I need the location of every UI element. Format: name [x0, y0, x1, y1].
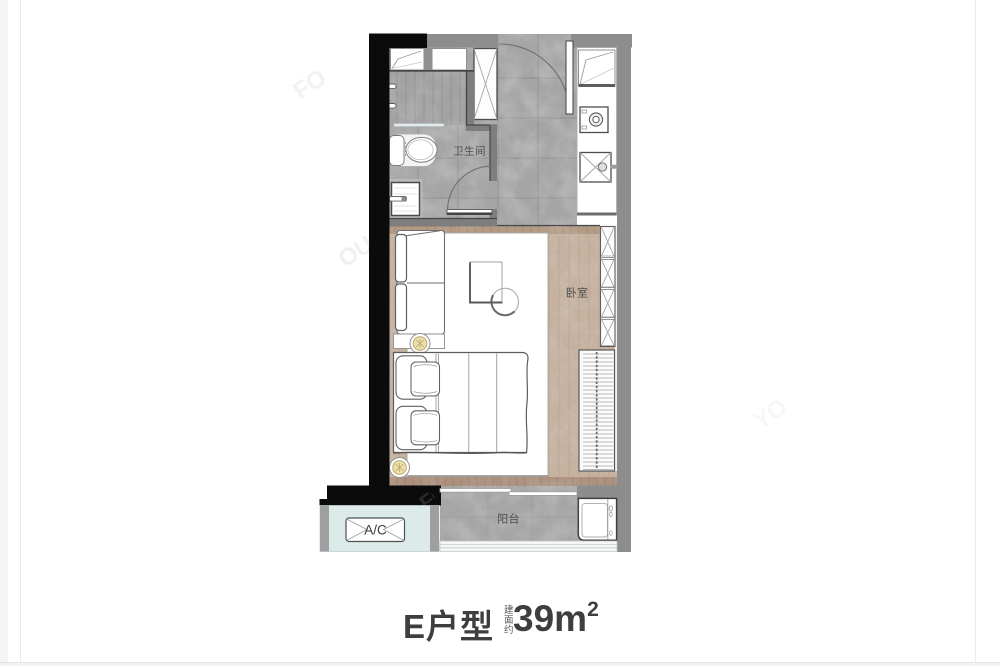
svg-text:FO: FO	[289, 64, 332, 105]
svg-text:阳台: 阳台	[497, 512, 520, 526]
svg-text:卧室: 卧室	[566, 286, 589, 300]
svg-text:YO: YO	[749, 393, 793, 435]
svg-text:A/C: A/C	[364, 523, 387, 538]
svg-text:卫生间: 卫生间	[453, 145, 486, 158]
